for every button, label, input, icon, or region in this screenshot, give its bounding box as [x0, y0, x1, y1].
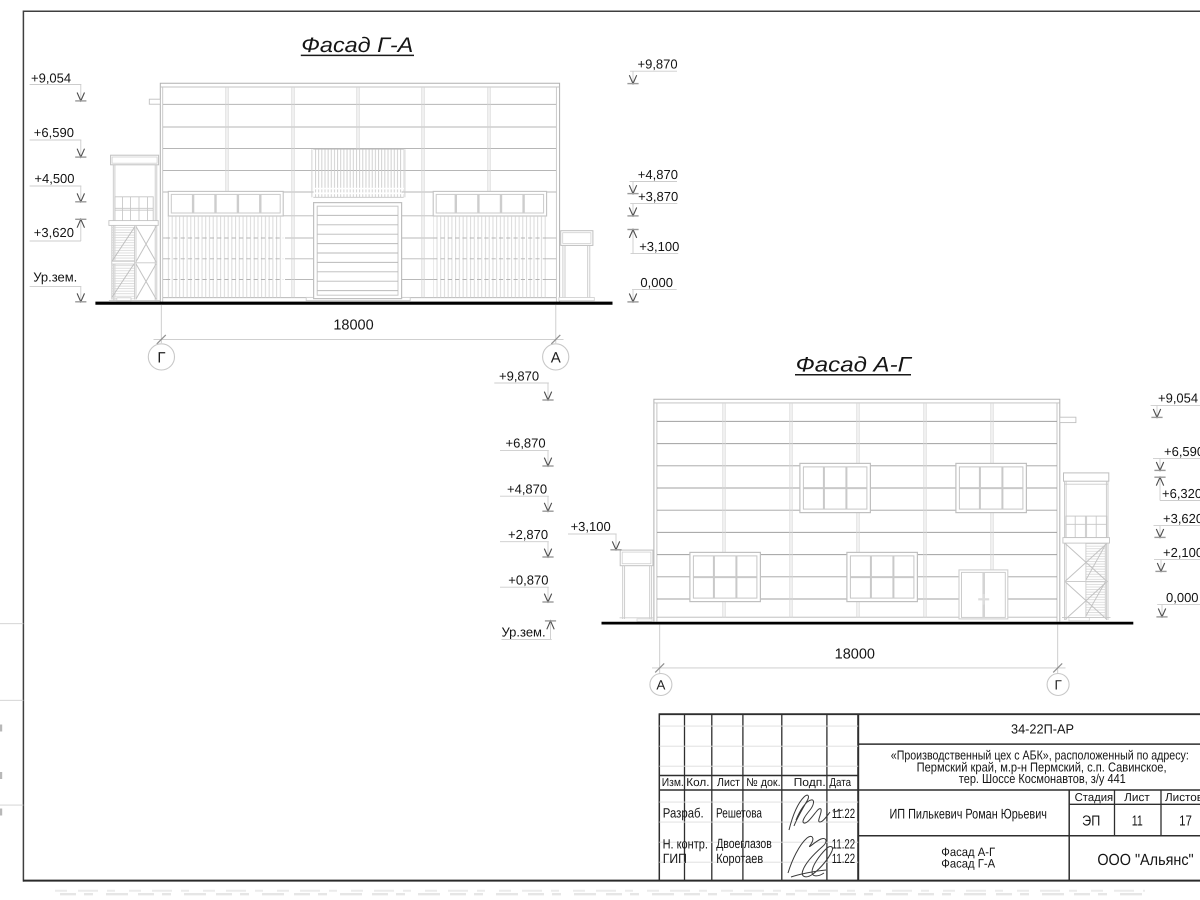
svg-text:Г: Г — [157, 349, 165, 366]
svg-text:+3,100: +3,100 — [639, 239, 679, 254]
svg-text:Ур.зем.: Ур.зем. — [33, 270, 77, 285]
svg-text:Лист: Лист — [717, 777, 741, 789]
svg-text:18000: 18000 — [835, 647, 875, 663]
svg-text:11: 11 — [1132, 813, 1143, 829]
svg-text:+6,870: +6,870 — [506, 436, 546, 451]
svg-text:34-22П-АР: 34-22П-АР — [1011, 722, 1074, 737]
svg-text:ИП Пилькевич Роман Юрьевич: ИП Пилькевич Роман Юрьевич — [889, 806, 1047, 822]
svg-text:Двоеглазов: Двоеглазов — [716, 836, 772, 851]
svg-text:+2,100: +2,100 — [1163, 545, 1200, 560]
svg-text:+4,500: +4,500 — [34, 171, 74, 186]
svg-text:А: А — [551, 349, 561, 366]
svg-text:Лист: Лист — [1124, 792, 1150, 804]
svg-text:+3,100: +3,100 — [571, 519, 611, 534]
svg-text:+6,590: +6,590 — [34, 125, 74, 140]
svg-text:11.22: 11.22 — [832, 851, 855, 866]
svg-text:Листов: Листов — [1165, 792, 1200, 804]
svg-text:11.22: 11.22 — [832, 806, 855, 821]
svg-text:0,000: 0,000 — [640, 275, 673, 290]
svg-text:тер. Шоссе Космонавтов, з/у 44: тер. Шоссе Космонавтов, з/у 441 — [959, 771, 1126, 786]
svg-text:Стадия: Стадия — [1075, 792, 1114, 804]
svg-text:18000: 18000 — [333, 318, 373, 334]
svg-text:№ док.: № док. — [746, 777, 780, 789]
svg-text:0,000: 0,000 — [1166, 590, 1199, 605]
svg-text:Подп.: Подп. — [794, 777, 826, 789]
svg-text:Н. контр.: Н. контр. — [663, 836, 708, 851]
svg-text:Фасад Г-А: Фасад Г-А — [941, 856, 996, 870]
svg-text:ЭП: ЭП — [1082, 813, 1100, 829]
svg-text:ГИП: ГИП — [663, 851, 687, 866]
svg-text:Фасад А-Г: Фасад А-Г — [796, 354, 913, 377]
svg-text:+4,870: +4,870 — [638, 167, 678, 182]
svg-text:+2,870: +2,870 — [508, 527, 548, 542]
svg-text:ООО "Альянс": ООО "Альянс" — [1097, 851, 1194, 869]
svg-text:Дата: Дата — [829, 777, 851, 789]
svg-text:+9,054: +9,054 — [31, 71, 71, 86]
svg-text:+9,054: +9,054 — [1158, 391, 1198, 406]
svg-text:Ур.зем.: Ур.зем. — [502, 625, 546, 640]
svg-text:Фасад Г-А: Фасад Г-А — [301, 34, 413, 57]
svg-text:+4,870: +4,870 — [507, 481, 547, 496]
svg-text:Коротаев: Коротаев — [716, 851, 763, 866]
svg-text:17: 17 — [1179, 813, 1192, 829]
svg-text:+0,870: +0,870 — [508, 572, 548, 587]
svg-text:+6,320: +6,320 — [1162, 486, 1200, 501]
svg-text:А: А — [656, 677, 665, 692]
svg-text:Г: Г — [1054, 677, 1062, 692]
svg-text:+3,620: +3,620 — [34, 225, 74, 240]
svg-text:11.22: 11.22 — [832, 837, 855, 852]
svg-text:+9,870: +9,870 — [638, 56, 678, 71]
svg-text:Изм.: Изм. — [662, 777, 684, 789]
svg-text:+6,590: +6,590 — [1164, 444, 1200, 459]
svg-text:+3,620: +3,620 — [1163, 511, 1200, 526]
svg-text:Кол.: Кол. — [686, 777, 709, 789]
svg-text:+3,870: +3,870 — [638, 189, 678, 204]
svg-text:Решетова: Решетова — [716, 805, 762, 820]
svg-text:+9,870: +9,870 — [499, 369, 539, 384]
svg-text:Разраб.: Разраб. — [663, 805, 704, 820]
